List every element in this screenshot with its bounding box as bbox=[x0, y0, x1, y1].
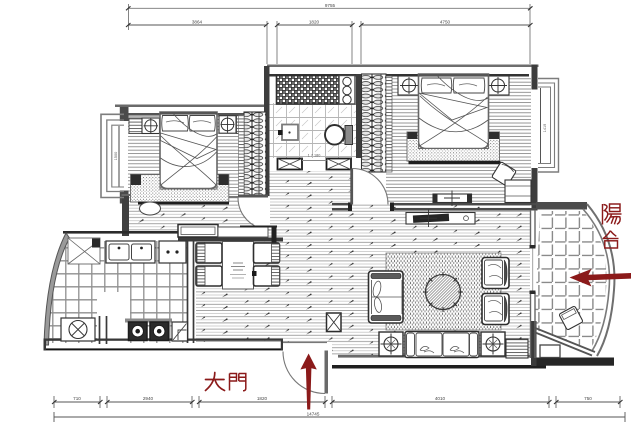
svg-text:4750: 4750 bbox=[440, 20, 451, 25]
svg-text:3864: 3864 bbox=[192, 20, 203, 25]
svg-text:750: 750 bbox=[584, 396, 592, 401]
svg-text:9755: 9755 bbox=[325, 3, 336, 8]
svg-text:14745: 14745 bbox=[307, 412, 320, 417]
svg-text:1 7 180: 1 7 180 bbox=[308, 154, 321, 158]
svg-text:1419: 1419 bbox=[543, 124, 547, 132]
svg-text:4010: 4010 bbox=[435, 396, 446, 401]
svg-text:1500: 1500 bbox=[114, 152, 118, 160]
svg-text:1820: 1820 bbox=[309, 20, 320, 25]
svg-text:710: 710 bbox=[73, 396, 81, 401]
svg-text:2940: 2940 bbox=[143, 396, 154, 401]
svg-text:1820: 1820 bbox=[257, 396, 268, 401]
